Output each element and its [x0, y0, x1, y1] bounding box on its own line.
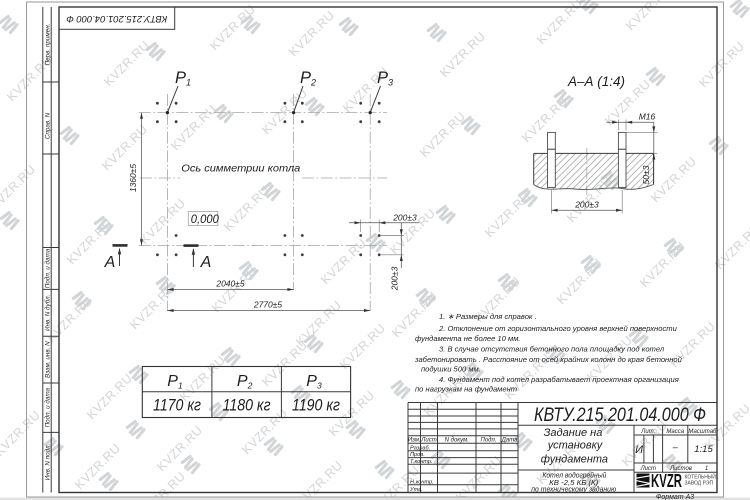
svg-text:Инв. N подл.: Инв. N подл.	[44, 444, 52, 481]
svg-text:Дата: Дата	[501, 438, 518, 444]
svg-text:забетонировать . Расстояние от: забетонировать . Расстояние от осей край…	[414, 355, 683, 364]
svg-text:Ось симметрии котла: Ось симметрии котла	[181, 164, 300, 175]
svg-text:1190 кг: 1190 кг	[292, 397, 340, 415]
svg-text:по нагрузкам на фундамент: по нагрузкам на фундамент	[415, 385, 517, 394]
svg-text:2040±5: 2040±5	[215, 279, 245, 289]
svg-text:Взам. инв. N: Взам. инв. N	[45, 341, 52, 378]
svg-text:Т.контр.: Т.контр.	[410, 459, 433, 465]
svg-text:1. ∗ Размеры для справок .: 1. ∗ Размеры для справок .	[439, 312, 537, 321]
svg-text:1180 кг: 1180 кг	[223, 397, 271, 415]
svg-text:А: А	[200, 254, 212, 271]
svg-text:Инв. N дубл.: Инв. N дубл.	[44, 295, 52, 331]
svg-text:200±3: 200±3	[392, 212, 417, 222]
svg-text:Лист: Лист	[420, 438, 436, 444]
svg-text:ЗАВОД РЭП: ЗАВОД РЭП	[685, 481, 714, 487]
svg-text:А–А (1:4): А–А (1:4)	[567, 74, 625, 89]
svg-text:200±3: 200±3	[574, 200, 599, 210]
svg-text:1170 кг: 1170 кг	[153, 397, 201, 415]
svg-text:И: И	[635, 444, 643, 456]
svg-text:Утв.: Утв.	[409, 487, 423, 493]
svg-text:по техническому заданию: по техническому заданию	[531, 486, 617, 494]
svg-text:–: –	[672, 442, 679, 452]
svg-text:Котел водогрейный: Котел водогрейный	[542, 471, 606, 479]
svg-text:А: А	[104, 254, 116, 271]
svg-text:фундамента не более 10 мм.: фундамента не более 10 мм.	[415, 334, 521, 343]
svg-text:Перв. примен.: Перв. примен.	[45, 24, 52, 66]
svg-text:Масса: Масса	[666, 429, 684, 435]
svg-text:Разраб.: Разраб.	[410, 445, 430, 451]
svg-text:фундамента: фундамента	[541, 453, 608, 465]
svg-text:4. Фундамент под котел разраба: 4. Фундамент под котел разрабатывает про…	[439, 375, 679, 384]
svg-text:1: 1	[705, 466, 708, 472]
svg-text:Масштаб: Масштаб	[688, 429, 717, 435]
svg-text:КВТУ.215.201.04.000 Ф: КВТУ.215.201.04.000 Ф	[66, 13, 167, 24]
svg-text:КВТУ.215.201.04.000 Ф: КВТУ.215.201.04.000 Ф	[534, 405, 706, 426]
svg-text:Формат А3: Формат А3	[656, 494, 694, 500]
svg-text:КОТЕЛЬНЫЙ: КОТЕЛЬНЫЙ	[685, 473, 717, 481]
svg-text:3. В случае отсутствия бетонно: 3. В случае отсутствия бетонного пола пл…	[439, 345, 665, 354]
svg-text:Справ. N: Справ. N	[45, 112, 52, 139]
svg-text:Подп.: Подп.	[481, 438, 497, 444]
svg-text:Подп. и дата: Подп. и дата	[44, 248, 52, 288]
svg-text:Лит.: Лит.	[640, 429, 655, 435]
svg-text:0,000: 0,000	[191, 212, 219, 226]
svg-text:М16: М16	[639, 112, 656, 122]
svg-text:Задание на: Задание на	[544, 427, 603, 439]
svg-text:N докум.: N докум.	[445, 438, 469, 444]
svg-text:50±3: 50±3	[641, 165, 651, 184]
svg-text:Подп. и дата: Подп. и дата	[44, 387, 52, 427]
svg-text:Н.контр.: Н.контр.	[410, 479, 434, 485]
svg-text:подушки 500 мм.: подушки 500 мм.	[421, 364, 481, 373]
svg-text:200±3: 200±3	[389, 266, 399, 291]
svg-text:Пров.: Пров.	[410, 452, 425, 458]
svg-text:установку: установку	[547, 439, 604, 451]
svg-text:1360±5: 1360±5	[128, 164, 138, 193]
svg-text:Изм.: Изм.	[408, 438, 421, 444]
svg-text:KVZR: KVZR	[651, 471, 682, 491]
svg-text:2. Отклонение от горизонтально: 2. Отклонение от горизонтального уровня …	[438, 324, 678, 333]
svg-text:2770±5: 2770±5	[253, 300, 283, 310]
svg-text:1:15: 1:15	[694, 444, 713, 455]
